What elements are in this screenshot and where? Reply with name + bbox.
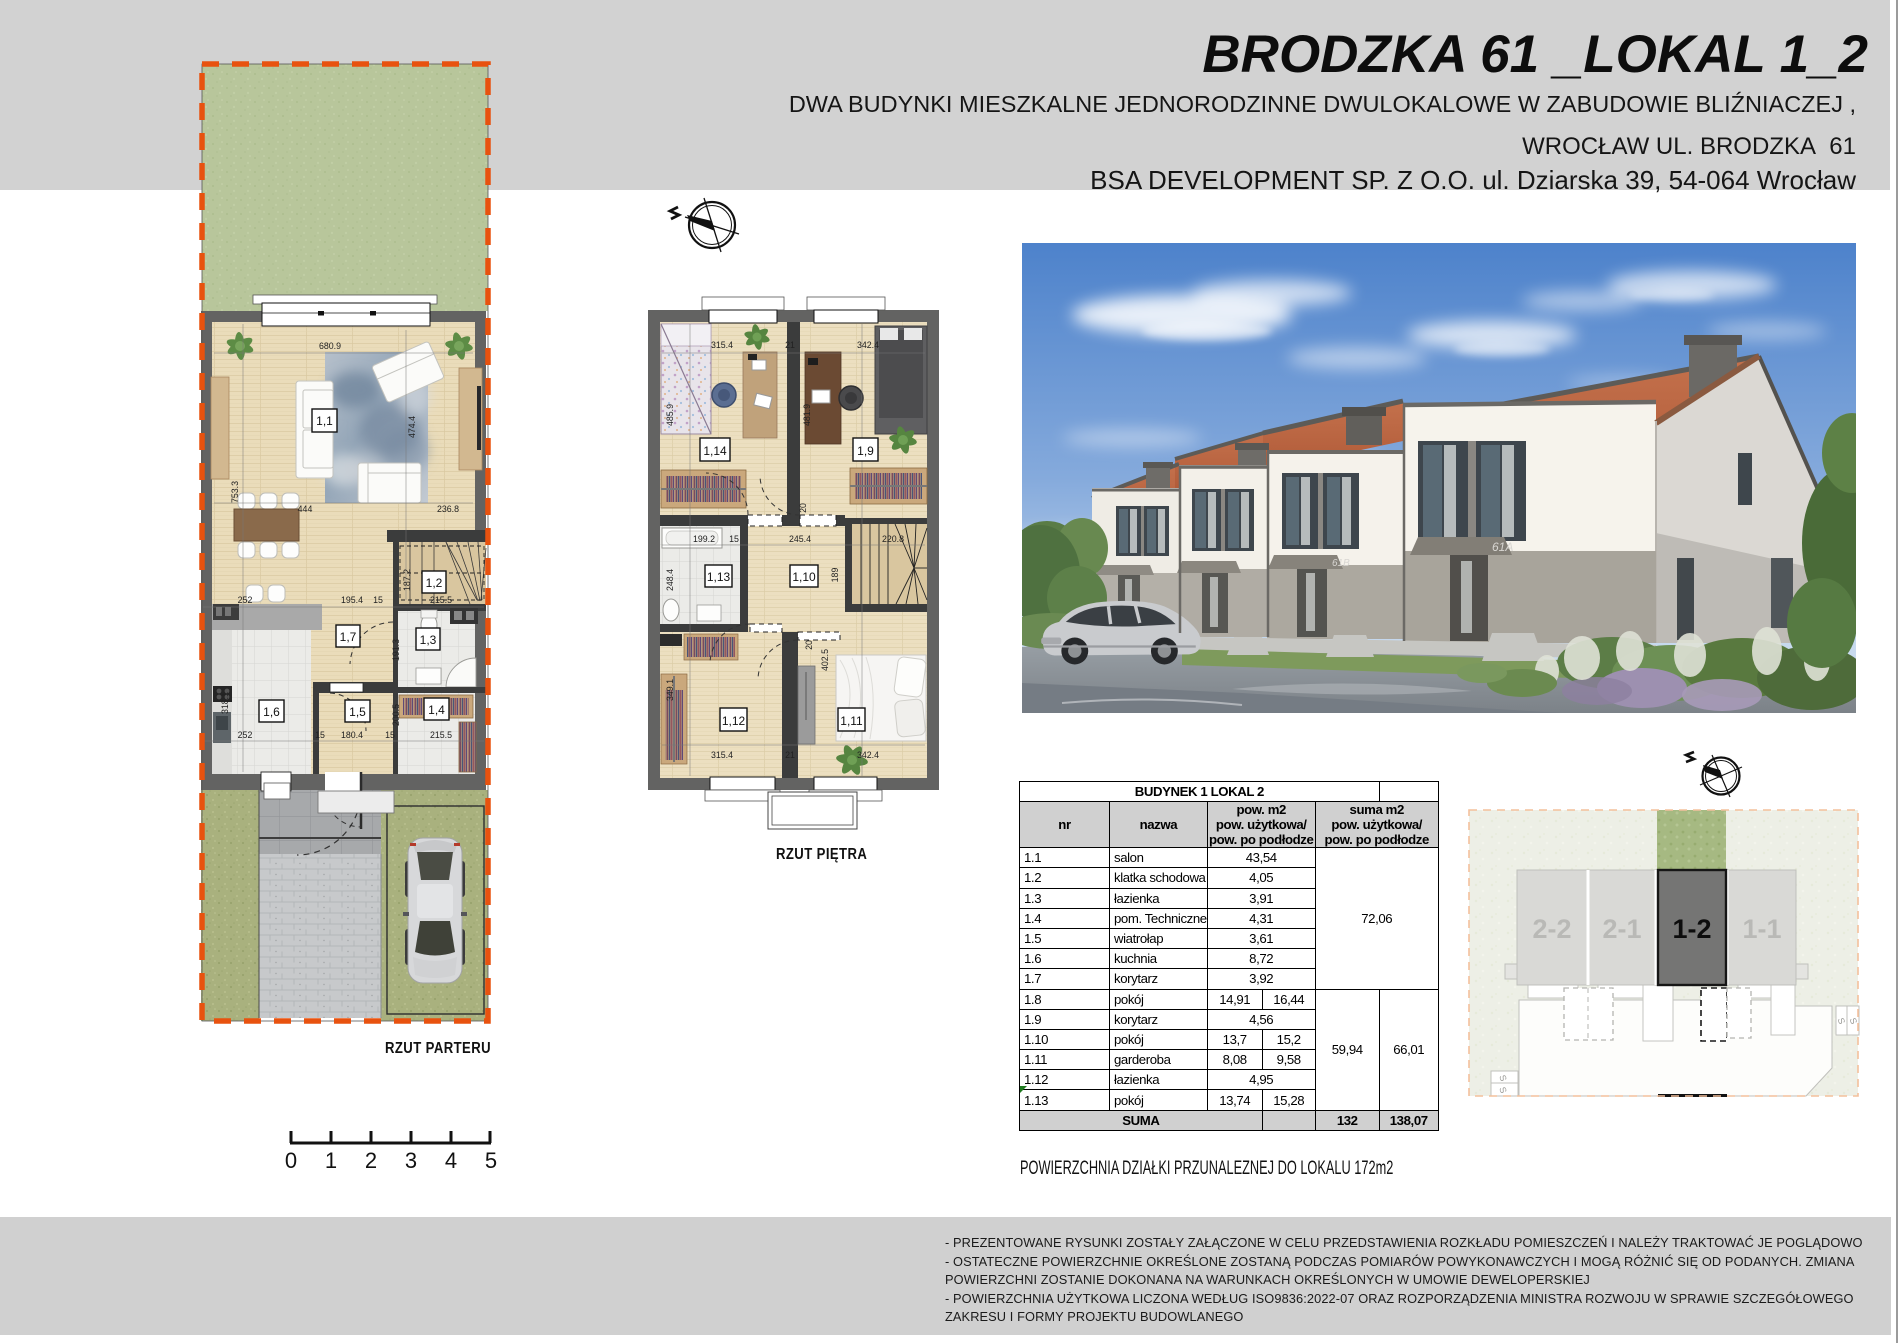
svg-text:199.2: 199.2 [693,534,715,544]
svg-text:15: 15 [385,730,395,740]
svg-text:1,1: 1,1 [316,414,333,428]
svg-text:1: 1 [325,1148,337,1173]
svg-text:220.8: 220.8 [882,534,904,544]
svg-text:1,6: 1,6 [263,705,280,719]
svg-text:485.9: 485.9 [665,404,675,426]
svg-text:61B: 61B [1332,558,1350,569]
svg-text:215.5: 215.5 [430,595,452,605]
svg-text:1,11: 1,11 [840,714,863,728]
svg-text:1,5: 1,5 [349,705,366,719]
svg-text:1,2: 1,2 [426,576,443,590]
svg-text:1,14: 1,14 [703,444,727,458]
svg-text:1,4: 1,4 [428,703,445,717]
svg-text:187.2: 187.2 [402,569,412,591]
svg-text:1,7: 1,7 [340,630,357,644]
svg-text:2-2: 2-2 [1532,914,1571,944]
svg-text:61A: 61A [1492,540,1513,554]
svg-text:20: 20 [804,640,814,650]
svg-text:4: 4 [445,1148,457,1173]
svg-text:1,13: 1,13 [707,570,731,584]
svg-text:21: 21 [785,750,795,760]
svg-text:2-1: 2-1 [1602,914,1641,944]
svg-text:195.4: 195.4 [341,595,363,605]
svg-text:315.4: 315.4 [711,340,733,350]
svg-text:236.8: 236.8 [437,504,459,514]
svg-text:2: 2 [365,1148,377,1173]
svg-text:680.9: 680.9 [319,341,341,351]
svg-text:248.4: 248.4 [665,569,675,591]
svg-text:474.4: 474.4 [407,416,417,438]
svg-text:349.1: 349.1 [665,679,675,701]
svg-text:481.9: 481.9 [802,404,812,426]
svg-text:444: 444 [298,504,313,514]
svg-text:753.3: 753.3 [230,481,240,503]
svg-text:318.1: 318.1 [220,692,230,714]
svg-text:1,3: 1,3 [420,633,437,647]
svg-text:402.5: 402.5 [820,649,830,671]
svg-text:342.4: 342.4 [857,340,879,350]
svg-text:1,12: 1,12 [722,714,746,728]
svg-text:245.4: 245.4 [789,534,811,544]
svg-text:20: 20 [798,503,808,513]
svg-text:0: 0 [285,1148,297,1173]
svg-text:1,10: 1,10 [792,570,816,584]
svg-text:315.4: 315.4 [711,750,733,760]
svg-text:200.5: 200.5 [391,704,401,726]
svg-text:189: 189 [830,568,840,583]
svg-text:191.3: 191.3 [391,639,401,661]
svg-text:15: 15 [315,730,325,740]
svg-text:252: 252 [238,730,253,740]
svg-text:21: 21 [785,340,795,350]
svg-text:15: 15 [373,595,383,605]
svg-text:180.4: 180.4 [341,730,363,740]
svg-text:1-1: 1-1 [1742,914,1781,944]
svg-text:252: 252 [238,595,253,605]
svg-text:215.5: 215.5 [430,730,452,740]
svg-text:342.4: 342.4 [857,750,879,760]
svg-text:15: 15 [729,534,739,544]
svg-text:1-2: 1-2 [1672,914,1711,944]
svg-text:5: 5 [485,1148,497,1173]
svg-text:1,9: 1,9 [857,444,874,458]
svg-text:3: 3 [405,1148,417,1173]
